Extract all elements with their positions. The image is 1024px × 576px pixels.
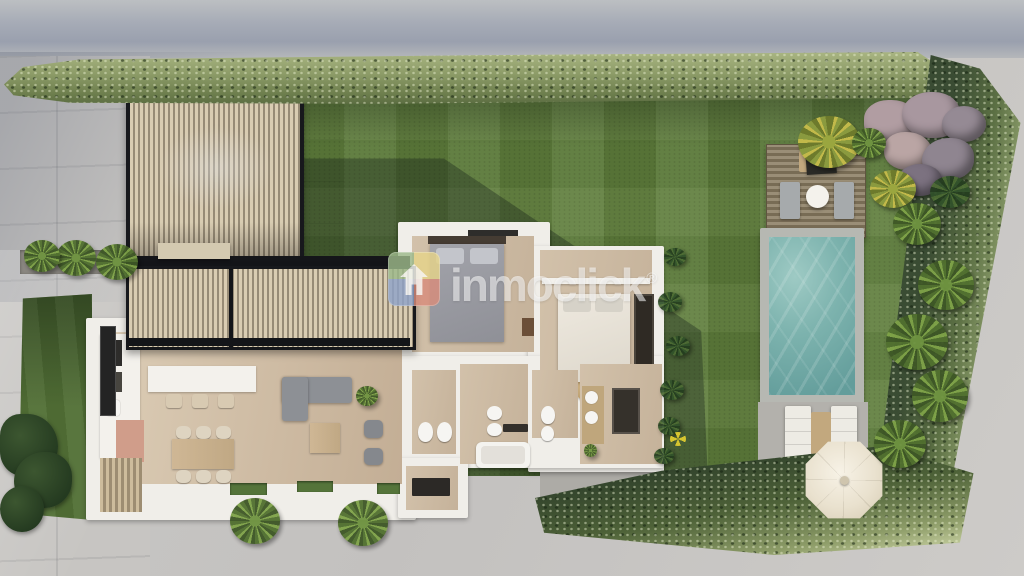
watermark-house-icon (399, 264, 429, 295)
deck-table (806, 185, 829, 208)
bar-stool (192, 394, 208, 408)
laundry-mat (412, 478, 450, 496)
living-floor (102, 332, 402, 484)
dining-chair (216, 470, 231, 483)
louvre-panel (100, 458, 142, 512)
sidewalk-palm (56, 240, 96, 276)
bath-mat (503, 424, 528, 432)
palm-plant (912, 370, 968, 422)
pool-water (769, 237, 855, 395)
bromeliad-plant (870, 170, 916, 208)
bathtub-basin (481, 446, 525, 464)
coffee-table (310, 423, 340, 453)
bar-stool (218, 394, 234, 408)
toy-yellow (670, 432, 686, 446)
agave-plant (658, 292, 682, 312)
watermark-brand: inmoclick (450, 259, 644, 311)
agave-plant (930, 176, 970, 208)
bathroom1-floor (412, 370, 456, 454)
bidet (541, 426, 554, 441)
pouf (364, 420, 383, 438)
palm-plant (886, 314, 948, 370)
hedge-top (4, 52, 946, 106)
shower (612, 388, 640, 434)
sidewalk-palm (96, 244, 138, 280)
watermark: inmoclick® (388, 252, 655, 312)
bed1-headboard (428, 236, 506, 244)
dining-chair (216, 426, 231, 439)
agave-plant (660, 380, 684, 400)
rock (942, 106, 986, 142)
street-top (0, 0, 1024, 58)
bathroom-plant (584, 444, 597, 457)
toilet (487, 406, 502, 420)
garden-bush (0, 486, 44, 532)
umbrella-pole (840, 476, 849, 485)
pergola-divider (229, 269, 233, 347)
sink (585, 391, 598, 404)
sidewalk-palm (24, 240, 60, 272)
agave-plant (654, 448, 674, 464)
sofa-chaise (282, 377, 308, 421)
dining-table (172, 439, 234, 469)
render-canvas: inmoclick® (0, 0, 1024, 576)
toilet (541, 406, 555, 424)
entry-door (100, 326, 116, 416)
bidet (437, 422, 452, 442)
concrete-beam (158, 243, 230, 259)
palm-plant (874, 420, 926, 468)
sun-lounger (780, 182, 800, 219)
water-reflections (769, 237, 855, 395)
palm-plant (918, 260, 974, 310)
toilet (418, 422, 433, 442)
bathroom3-floor (532, 370, 578, 438)
watermark-logo (388, 252, 440, 306)
dining-chair (196, 426, 211, 439)
facade-palm (338, 500, 388, 546)
dining-chair (176, 426, 191, 439)
kitchen-island (148, 366, 256, 392)
bar-stool (166, 394, 182, 408)
facade-palm (230, 498, 280, 544)
sun-lounger (834, 182, 854, 219)
pouf (364, 448, 383, 465)
bedroom1-bench (522, 318, 534, 336)
facade-planter (377, 483, 400, 494)
agave-plant (664, 248, 686, 266)
car-under-roof (158, 126, 274, 210)
palm-plant (893, 203, 941, 245)
facade-planter (297, 481, 333, 492)
watermark-text: inmoclick® (450, 252, 655, 312)
registered-mark-icon: ® (646, 270, 655, 287)
pergola-frame-band (126, 338, 410, 346)
bidet (487, 423, 502, 436)
indoor-plant (356, 386, 378, 406)
facade-planter (230, 483, 267, 495)
palm-plant (798, 116, 860, 168)
sink (585, 411, 598, 424)
agave-plant (666, 336, 690, 356)
dining-chair (176, 470, 191, 483)
dining-chair (196, 470, 211, 483)
palm-plant (852, 128, 886, 158)
terracotta-wall (116, 420, 144, 462)
